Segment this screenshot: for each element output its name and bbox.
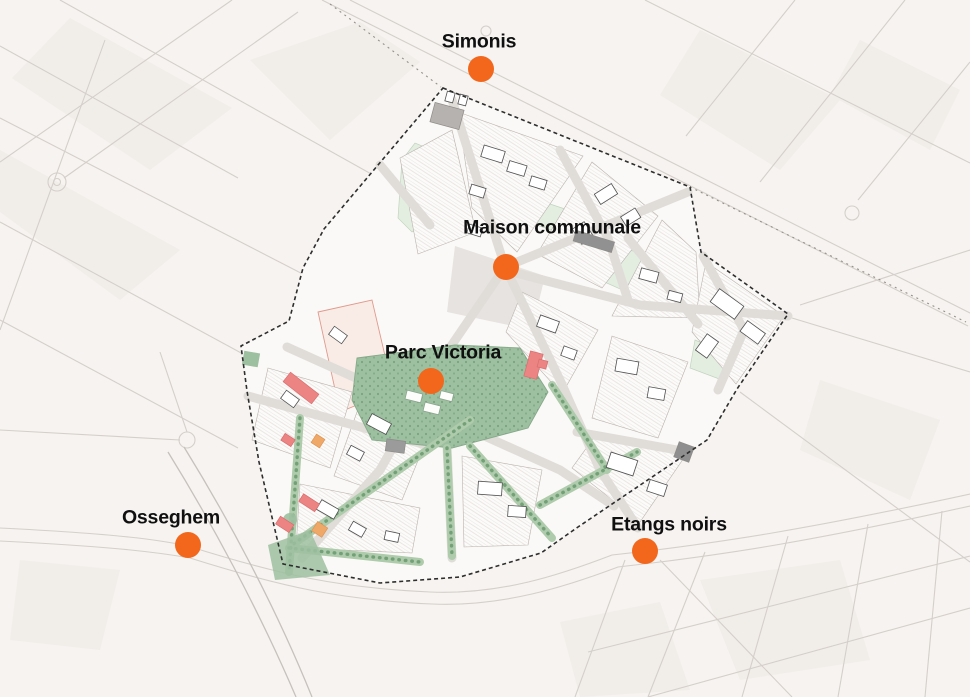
etangs-noirs-dot-icon [632,538,658,564]
map-viewport: Simonis Maison communale Parc Victoria O… [0,0,970,697]
marker-layer: Simonis Maison communale Parc Victoria O… [0,0,970,697]
maison-communale-label: Maison communale [463,217,641,240]
etangs-noirs-label: Etangs noirs [611,514,727,537]
osseghem-dot-icon [175,532,201,558]
parc-victoria-dot-icon [418,368,444,394]
simonis-label: Simonis [442,31,516,54]
parc-victoria-label: Parc Victoria [385,342,501,365]
osseghem-label: Osseghem [122,507,220,530]
simonis-dot-icon [468,56,494,82]
maison-communale-dot-icon [493,254,519,280]
